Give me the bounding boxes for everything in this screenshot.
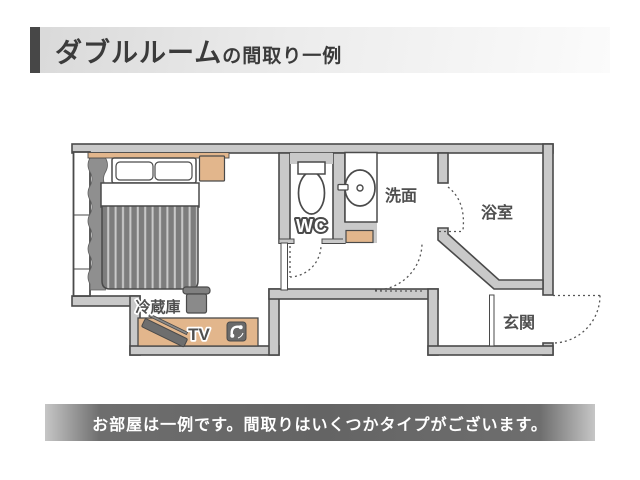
bed-sheet [101, 183, 199, 207]
phone-icon-bg [227, 322, 246, 341]
wall-bedroom-wc-divider [279, 153, 290, 243]
bed-pillow-left [116, 162, 153, 180]
bathroom-door-swing [448, 187, 463, 230]
window-frame [74, 152, 91, 296]
toilet-tank [298, 162, 325, 174]
toilet-icon [298, 162, 325, 214]
phone-icon [227, 322, 246, 341]
wall-bathroom-diagonal [438, 228, 543, 289]
double-bed [101, 158, 199, 289]
label-tv: TV [188, 325, 210, 344]
wall-corridor-bottom [269, 289, 438, 299]
label-bathroom: 浴室 [481, 203, 513, 222]
toilet-bowl [299, 172, 325, 214]
wall-bathroom-left-upper [438, 153, 448, 183]
fridge-body [187, 294, 207, 313]
wall-top [72, 144, 553, 153]
phone-earpiece [230, 334, 234, 338]
wall-wc-bottom-right [322, 239, 345, 244]
label-entrance: 玄関 [503, 313, 535, 332]
sink-faucet [338, 185, 348, 191]
label-wc: WC [296, 216, 328, 236]
entrance-step-edge [490, 295, 495, 346]
entrance-door-swing [554, 296, 601, 344]
nightstand [200, 156, 225, 181]
fridge-icon [183, 287, 210, 313]
bed-blanket [102, 206, 198, 289]
wall-entrance-bottom [428, 346, 553, 355]
label-fridge: 冷蔵庫 [135, 298, 180, 316]
sink-drain [357, 185, 363, 191]
phone-mouthpiece [239, 325, 243, 329]
corridor-door-swing [375, 243, 422, 290]
bedroom-doorway-frame [281, 243, 288, 290]
fridge-lid [183, 287, 210, 294]
page: ダブルルームの間取り一例 [0, 0, 640, 480]
footer-note: お部屋は一例です。間取りはいくつかタイプがございます。 [92, 411, 548, 435]
wc-door-swing [290, 245, 321, 277]
label-washroom: 洗面 [385, 186, 417, 205]
bed-pillow-right [155, 162, 192, 180]
footer-note-bar: お部屋は一例です。間取りはいくつかタイプがございます。 [45, 404, 595, 441]
wall-right-upper [543, 144, 553, 295]
window [74, 152, 91, 296]
bath-mat [346, 231, 373, 243]
wall-entrance-left [428, 289, 438, 355]
wall-alcove-bottom [130, 346, 279, 355]
